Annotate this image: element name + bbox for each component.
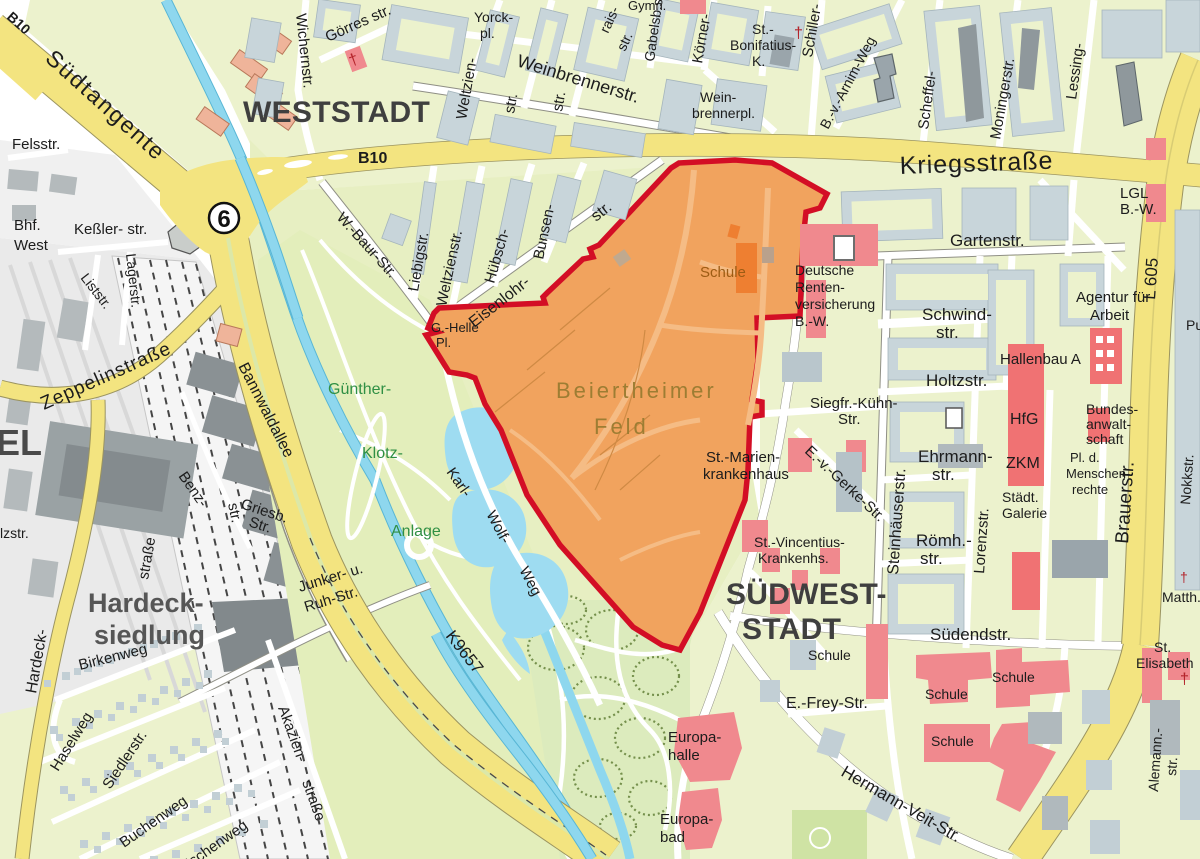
svg-text:St.-: St.- xyxy=(752,21,774,37)
svg-text:Feld: Feld xyxy=(594,414,649,439)
svg-text:B.-W.: B.-W. xyxy=(795,313,829,329)
svg-text:Gymn.: Gymn. xyxy=(628,0,666,13)
svg-text:Bonifatius-: Bonifatius- xyxy=(730,37,796,53)
svg-text:Menschen-: Menschen- xyxy=(1066,466,1130,481)
svg-text:bad: bad xyxy=(660,829,685,846)
svg-text:Schule: Schule xyxy=(925,686,968,702)
svg-text:K.: K. xyxy=(752,53,765,69)
svg-text:versicherung: versicherung xyxy=(795,296,875,312)
svg-text:Römh.-: Römh.- xyxy=(916,531,972,550)
svg-text:E.-Frey-Str.: E.-Frey-Str. xyxy=(786,695,868,712)
svg-text:Str.: Str. xyxy=(838,411,861,428)
svg-text:Städt.: Städt. xyxy=(1002,489,1039,505)
svg-text:HfG: HfG xyxy=(1010,411,1038,428)
svg-text:str.: str. xyxy=(932,465,955,484)
svg-text:St.-Vincentius-: St.-Vincentius- xyxy=(754,534,845,550)
svg-text:lzstr.: lzstr. xyxy=(0,525,29,541)
svg-text:ZKM: ZKM xyxy=(1006,455,1040,472)
svg-text:halle: halle xyxy=(668,747,700,764)
svg-text:Bhf.: Bhf. xyxy=(14,217,41,234)
svg-text:Ehrmann-: Ehrmann- xyxy=(918,447,993,466)
svg-text:St.: St. xyxy=(1154,639,1171,655)
svg-text:Hardeck-: Hardeck- xyxy=(88,588,204,618)
svg-text:Holtzstr.: Holtzstr. xyxy=(926,371,987,390)
svg-text:Wein-: Wein- xyxy=(700,89,737,105)
svg-text:Anlage: Anlage xyxy=(391,523,441,540)
svg-text:Gartenstr.: Gartenstr. xyxy=(950,231,1025,250)
svg-text:Pu: Pu xyxy=(1186,317,1200,333)
svg-text:Schule: Schule xyxy=(700,264,746,281)
svg-text:str.: str. xyxy=(920,549,943,568)
svg-text:Krankenhs.: Krankenhs. xyxy=(758,550,829,566)
svg-text:West: West xyxy=(14,237,49,254)
svg-text:str.: str. xyxy=(936,323,959,342)
svg-text:Yorck-: Yorck- xyxy=(474,9,514,25)
svg-text:anwalt-: anwalt- xyxy=(1086,416,1131,432)
svg-text:Schule: Schule xyxy=(808,647,851,663)
svg-text:krankenhaus: krankenhaus xyxy=(703,466,789,483)
svg-text:rechte: rechte xyxy=(1072,482,1108,497)
svg-text:Siegfr.-Kühn-: Siegfr.-Kühn- xyxy=(810,395,898,412)
svg-text:Galerie: Galerie xyxy=(1002,505,1047,521)
svg-text:Hallenbau A: Hallenbau A xyxy=(1000,351,1081,368)
svg-text:Schwind-: Schwind- xyxy=(922,305,992,324)
svg-text:Europa-: Europa- xyxy=(668,729,721,746)
svg-text:Elisabeth: Elisabeth xyxy=(1136,655,1194,671)
svg-text:STADT: STADT xyxy=(742,613,841,646)
svg-text:pl.: pl. xyxy=(480,25,495,41)
svg-text:str.: str. xyxy=(549,90,569,113)
svg-text:brennerpl.: brennerpl. xyxy=(692,105,755,121)
svg-text:Matth.-: Matth.- xyxy=(1162,589,1200,605)
svg-text:B.-W.: B.-W. xyxy=(1120,201,1157,218)
svg-text:siedlung: siedlung xyxy=(94,620,205,650)
svg-text:Pl. d.: Pl. d. xyxy=(1070,450,1100,465)
svg-text:Deutsche: Deutsche xyxy=(795,262,854,278)
svg-text:Südendstr.: Südendstr. xyxy=(930,625,1011,644)
svg-text:Keßler- str.: Keßler- str. xyxy=(74,221,147,238)
svg-text:Renten-: Renten- xyxy=(795,279,845,295)
svg-text:SÜDWEST-: SÜDWEST- xyxy=(726,578,887,611)
svg-text:Günther-: Günther- xyxy=(328,381,391,398)
svg-text:Beiertheimer: Beiertheimer xyxy=(556,378,717,403)
svg-text:Felsstr.: Felsstr. xyxy=(12,136,60,153)
svg-text:Schule: Schule xyxy=(992,669,1035,685)
svg-text:schaft: schaft xyxy=(1086,431,1123,447)
svg-text:Schule: Schule xyxy=(931,733,974,749)
svg-text:EL: EL xyxy=(0,422,42,463)
svg-text:Europa-: Europa- xyxy=(660,811,713,828)
svg-text:Arbeit: Arbeit xyxy=(1090,307,1130,324)
svg-text:6: 6 xyxy=(217,206,230,233)
svg-text:Klotz-: Klotz- xyxy=(362,445,403,462)
svg-text:Kriegsstraße: Kriegsstraße xyxy=(899,147,1054,180)
svg-text:str.: str. xyxy=(1163,756,1180,776)
svg-text:St.-Marien-: St.-Marien- xyxy=(706,449,780,466)
svg-text:LGL: LGL xyxy=(1120,185,1148,202)
svg-text:†: † xyxy=(1180,671,1189,688)
svg-text:†: † xyxy=(1180,569,1188,585)
svg-text:Agentur für: Agentur für xyxy=(1076,289,1150,306)
svg-text:Pl.: Pl. xyxy=(436,335,451,350)
svg-text:B10: B10 xyxy=(358,150,387,167)
svg-text:str.: str. xyxy=(501,92,521,115)
svg-text:WESTSTADT: WESTSTADT xyxy=(243,96,430,129)
svg-text:Bundes-: Bundes- xyxy=(1086,401,1138,417)
